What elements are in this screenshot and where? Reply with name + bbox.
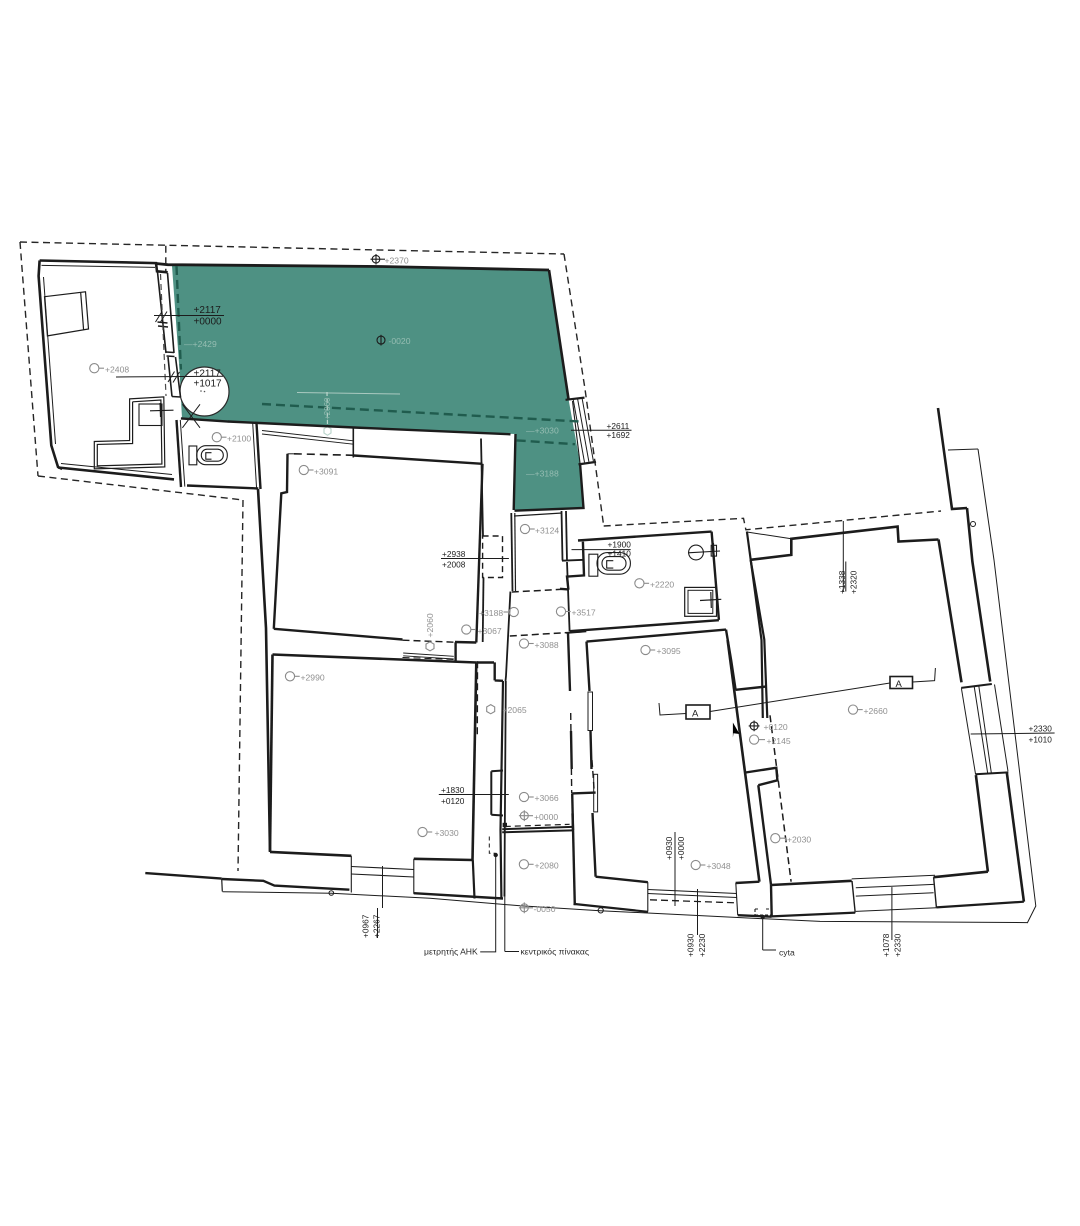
svg-text:+2370: +2370 (385, 256, 409, 266)
svg-text:+0967: +0967 (361, 914, 371, 938)
svg-text:+2320: +2320 (849, 570, 859, 594)
svg-text:+2030: +2030 (787, 835, 811, 845)
svg-text:+0000: +0000 (194, 316, 223, 327)
svg-text:—+3188: —+3188 (526, 469, 559, 479)
svg-text:+3088: +3088 (535, 640, 559, 650)
svg-text:+0120: +0120 (441, 796, 465, 806)
svg-text:μετρητής ΑΗΚ: μετρητής ΑΗΚ (424, 947, 478, 957)
svg-text:+2080: +2080 (535, 861, 559, 871)
svg-text:+2060: +2060 (323, 397, 332, 420)
svg-text:+1017: +1017 (194, 378, 223, 389)
svg-text:-0020: -0020 (389, 336, 411, 346)
svg-text:+1692: +1692 (607, 430, 631, 440)
svg-text:+1010: +1010 (1029, 735, 1053, 745)
svg-text:—+3030: —+3030 (526, 426, 559, 436)
svg-text:+0930: +0930 (664, 836, 674, 860)
svg-text:+0120: +0120 (764, 722, 788, 732)
svg-text:+2117: +2117 (194, 305, 222, 316)
svg-text:+3517: +3517 (572, 608, 596, 618)
svg-text:+2230: +2230 (697, 933, 707, 957)
svg-text:+2408: +2408 (105, 365, 129, 375)
svg-text:+2938: +2938 (442, 549, 466, 559)
svg-text:+2330: +2330 (1029, 724, 1053, 734)
svg-text:+2065: +2065 (503, 705, 527, 715)
svg-text:+3067: +3067 (478, 626, 502, 636)
svg-text:+2990: +2990 (301, 673, 325, 683)
svg-text:cyta: cyta (779, 948, 795, 958)
svg-text:—+2429: —+2429 (184, 339, 217, 349)
svg-text:+0000: +0000 (676, 836, 686, 860)
svg-text:+2008: +2008 (442, 560, 466, 570)
svg-text:+3030: +3030 (435, 828, 459, 838)
svg-text:A: A (896, 679, 903, 690)
svg-text:+3048: +3048 (707, 861, 731, 871)
svg-text:+2660: +2660 (864, 706, 888, 716)
svg-text:+3124: +3124 (535, 526, 559, 536)
svg-text:+2145: +2145 (767, 736, 791, 746)
svg-text:κεντρικός πίνακας: κεντρικός πίνακας (521, 947, 590, 957)
svg-text:+2060: +2060 (425, 613, 435, 637)
svg-text:+1338: +1338 (837, 570, 847, 594)
svg-text:+3091: +3091 (314, 467, 338, 477)
svg-text:+1078: +1078 (881, 933, 891, 957)
svg-text:+1410: +1410 (608, 548, 632, 558)
svg-text:+3095: +3095 (657, 646, 681, 656)
svg-text:+0930: +0930 (686, 933, 696, 957)
svg-text:A: A (692, 709, 699, 720)
svg-text:+2220: +2220 (650, 580, 674, 590)
svg-text:+1830: +1830 (441, 785, 465, 795)
svg-text:+2267: +2267 (372, 914, 382, 938)
svg-text:+2330: +2330 (893, 933, 903, 957)
svg-text:+3066: +3066 (535, 793, 559, 803)
svg-text:+2100: +2100 (227, 434, 251, 444)
svg-text:+0000: +0000 (534, 812, 558, 822)
svg-text:-0050: -0050 (534, 904, 556, 914)
svg-text:+3188: +3188 (479, 608, 503, 618)
